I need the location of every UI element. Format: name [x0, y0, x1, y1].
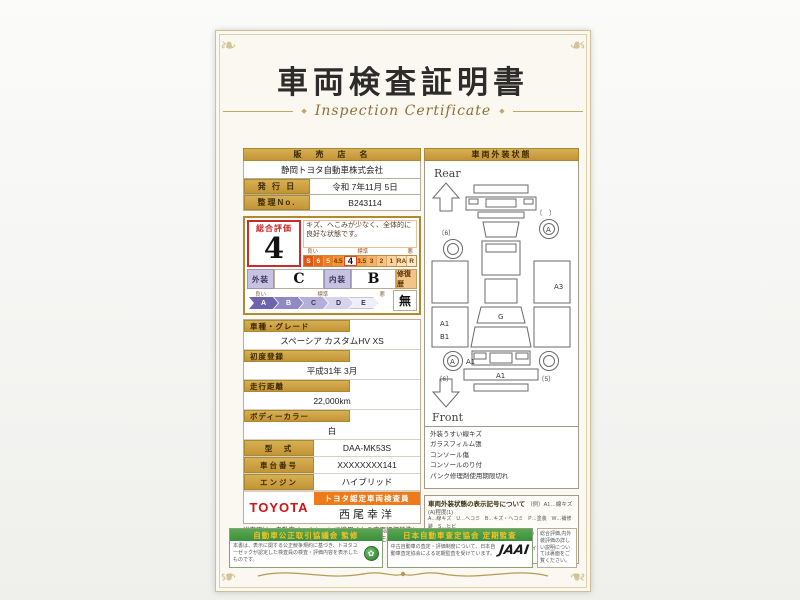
grade-good-label: 良い — [255, 290, 266, 297]
scale-cell-selected: 4 — [344, 256, 358, 266]
field-value-model: スペーシア カスタムHV XS — [244, 332, 420, 350]
legend-title: 車両外装状態の表示記号について — [428, 501, 525, 508]
car-diagram-panel: Rear G — [424, 161, 579, 489]
condition-note: コンソールのり付 — [430, 461, 573, 471]
council-seal-icon: ✿ — [364, 546, 379, 561]
mark-left-panel-b1: B1 — [440, 333, 449, 341]
dealer-name-value: 静岡トヨタ自動車株式会社 — [243, 161, 421, 179]
vehicle-info-column: 販 売 店 名 静岡トヨタ自動車株式会社 発 行 日 令和 7年11月 5日 整… — [243, 148, 421, 553]
fair-trade-text: 本書は、表示に関する公正競争規約に基づき、トヨタユーゼックが認定した検査員の検査… — [233, 543, 361, 564]
exterior-label: 外装 — [247, 269, 274, 289]
field-value-body-color: 白 — [244, 422, 420, 440]
scale-standard-label: 標準 — [357, 247, 368, 255]
field-label-chassis-no: 車台番号 — [244, 457, 314, 473]
rear-arrow-icon — [433, 183, 459, 211]
mark-windshield: G — [498, 313, 503, 321]
jaai-logo: JAAI — [498, 543, 530, 558]
grade-standard-label: 標準 — [317, 290, 328, 297]
score-scale-labels: 良い 標準 悪 — [303, 248, 417, 255]
scale-cell: 1 — [387, 256, 397, 266]
issue-date-value: 令和 7年11月 5日 — [310, 179, 420, 194]
jaai-text: 中古自動車の査定・評価制度について、日本自動車査定協会による定期監査を受けていま… — [391, 544, 497, 558]
repair-history-label: 修復歴 — [396, 269, 417, 289]
field-value-engine: ハイブリッド — [314, 474, 420, 490]
desktop-background: ❧ ❧ ❧ ❧ 車両検査証明書 ◆ Inspection Certificate… — [0, 0, 800, 600]
ref-no-label: 整理No. — [244, 195, 310, 210]
front-arrow-icon — [433, 379, 459, 407]
mark-wheel-right: A — [546, 226, 551, 234]
grade-chevron: C — [299, 297, 328, 309]
field-row-model-code: 型 式 DAA-MK53S — [244, 440, 420, 457]
ref-no-value: B243114 — [310, 195, 420, 210]
field-label-model-code: 型 式 — [244, 440, 314, 456]
grade-chevron: E — [349, 297, 378, 309]
grade-chevron: A — [249, 297, 278, 309]
scale-cell: 3 — [367, 256, 377, 266]
mark-right-panel-a3: A3 — [554, 283, 563, 291]
scale-cell: 3.5 — [357, 256, 367, 266]
field-row-chassis-no: 車台番号 XXXXXXXX141 — [244, 457, 420, 474]
jaai-header: 日本自動車査定協会 定期監査 — [388, 529, 532, 541]
rear-label: Rear — [434, 167, 461, 180]
condition-note: ガラスフィルム張 — [430, 440, 573, 450]
tire-depth-rear-left: 〔6〕 — [438, 229, 455, 237]
certificate-footer: 自動車公正取引協議会 監修 本書は、表示に関する公正競争規約に基づき、トヨタユー… — [229, 528, 577, 568]
flourish-swirl-icon — [253, 565, 553, 583]
front-label: Front — [432, 411, 464, 424]
field-value-chassis-no: XXXXXXXX141 — [314, 457, 420, 473]
grade-chevron: B — [274, 297, 303, 309]
overall-score-box: 総合評価 4 — [247, 220, 301, 267]
toyota-logo: TOYOTA — [244, 492, 314, 523]
evaluation-box: 総合評価 4 キズ、へこみが少なく、全体的に良好な状態です。 良い 標準 悪 S… — [243, 216, 421, 315]
exterior-condition-header: 車両外装状態 — [424, 148, 579, 161]
inspection-certificate-sheet: ❧ ❧ ❧ ❧ 車両検査証明書 ◆ Inspection Certificate… — [215, 30, 591, 592]
scale-cell: S — [304, 256, 314, 266]
dealer-name-header: 販 売 店 名 — [243, 148, 421, 161]
scale-cell: RA — [397, 256, 407, 266]
overall-score-value: 4 — [264, 234, 284, 263]
fair-trade-header: 自動車公正取引協議会 監修 — [230, 529, 382, 541]
grade-chevron: D — [324, 297, 353, 309]
scale-bad-label: 悪 — [407, 247, 413, 255]
see-reverse-note: 総合評価,内外装評価の詳しい説明については裏面をご覧ください。 — [537, 528, 577, 568]
field-label-engine: エンジン — [244, 474, 314, 490]
issue-date-label: 発 行 日 — [244, 179, 310, 194]
condition-note: パンク修理剤使用期限切れ — [430, 472, 573, 482]
mark-left-panel-a1: A1 — [440, 320, 449, 328]
tire-depth-front-right: 〔5〕 — [538, 375, 555, 383]
flourish-rule-right — [513, 111, 583, 112]
field-label-body-color: ボディーカラー — [244, 410, 350, 422]
field-row-engine: エンジン ハイブリッド — [244, 474, 420, 491]
exterior-condition-column: 車両外装状態 Rear — [424, 148, 579, 564]
inspector-name: 西尾幸洋 — [314, 505, 420, 523]
vehicle-fields: 車種・グレード スペーシア カスタムHV XS 初度登録 平成31年 3月 走行… — [243, 319, 421, 524]
diamond-ornament-icon: ◆ — [499, 107, 504, 115]
scale-cell: 4.5 — [334, 256, 344, 266]
repair-history-value: 無 — [393, 290, 417, 311]
certificate-title: 車両検査証明書 — [216, 57, 590, 102]
condition-note: コンソール傷 — [430, 451, 573, 461]
car-exploded-diagram: Rear G — [426, 163, 577, 425]
grade-scale: 良い 標準 悪 A B C D E — [247, 290, 393, 311]
grade-bad-label: 悪 — [379, 290, 385, 297]
scale-cell: 6 — [314, 256, 324, 266]
mark-wheel-left: A — [450, 358, 455, 366]
field-value-mileage: 22,000km — [244, 392, 420, 410]
exterior-grade: C — [274, 269, 324, 289]
certified-inspector-badge: トヨタ認定車両検査員 — [314, 492, 420, 505]
interior-label: 内装 — [324, 269, 351, 289]
field-label-mileage: 走行距離 — [244, 380, 350, 392]
field-value-first-registration: 平成31年 3月 — [244, 362, 420, 380]
evaluation-comment: キズ、へこみが少なく、全体的に良好な状態です。 — [303, 220, 417, 248]
condition-note: 外装うすい線キズ — [430, 430, 573, 440]
tire-depth-rear-right: 〔 〕 — [536, 209, 556, 217]
bottom-flourish-ornament — [216, 565, 590, 583]
ref-no-row: 整理No. B243114 — [243, 195, 421, 211]
scale-cell: 2 — [377, 256, 387, 266]
field-label-model: 車種・グレード — [244, 320, 350, 332]
jaai-audit-box: 日本自動車査定協会 定期監査 中古自動車の査定・評価制度について、日本自動車査定… — [387, 528, 533, 568]
scale-cell: R — [407, 256, 416, 266]
inspector-box: TOYOTA トヨタ認定車両検査員 西尾幸洋 — [244, 491, 420, 523]
mark-front-bumper: A1 — [496, 372, 505, 380]
corner-ornament-icon: ❧ — [560, 33, 586, 59]
mark-wheel-note: A1 — [466, 358, 475, 366]
interior-grade: B — [351, 269, 396, 289]
certificate-subtitle: Inspection Certificate — [315, 103, 491, 119]
condition-notes: 外装うすい線キズ ガラスフィルム張 コンソール傷 コンソールのり付 パンク修理剤… — [425, 426, 578, 488]
field-label-first-registration: 初度登録 — [244, 350, 350, 362]
diamond-ornament-icon: ◆ — [301, 107, 306, 115]
issue-date-row: 発 行 日 令和 7年11月 5日 — [243, 179, 421, 195]
scale-good-label: 良い — [307, 247, 318, 255]
score-scale: S 6 5 4.5 4 3.5 3 2 1 RA R — [303, 255, 417, 267]
flourish-rule-left — [223, 111, 293, 112]
fair-trade-council-box: 自動車公正取引協議会 監修 本書は、表示に関する公正競争規約に基づき、トヨタユー… — [229, 528, 383, 568]
scale-cell: 5 — [324, 256, 334, 266]
corner-ornament-icon: ❧ — [220, 33, 246, 59]
field-value-model-code: DAA-MK53S — [314, 440, 420, 456]
certificate-subtitle-row: ◆ Inspection Certificate ◆ — [216, 103, 590, 119]
